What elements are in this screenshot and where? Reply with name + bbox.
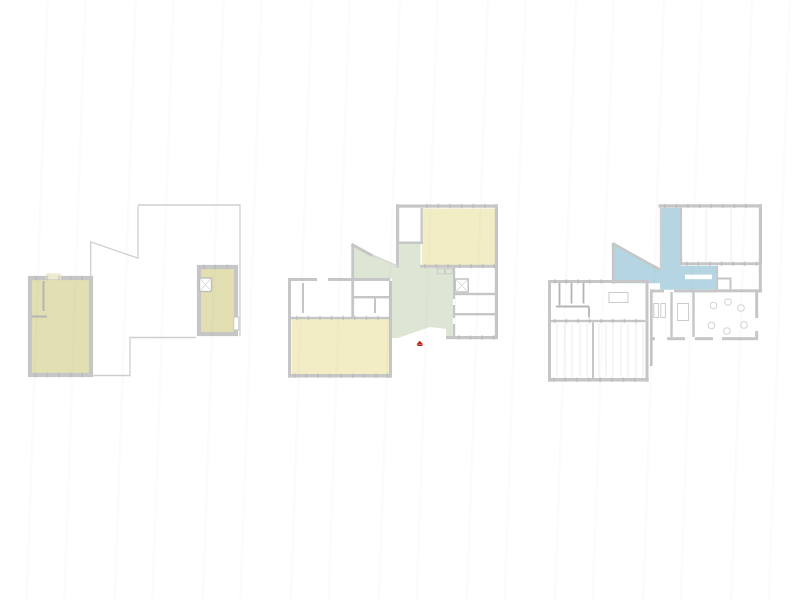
bath-fixtures (609, 293, 689, 321)
floor-plan-left (30, 205, 240, 376)
entrance-marker (416, 341, 423, 346)
floor-plan-center (288, 205, 498, 378)
floor-plan-right (548, 204, 762, 381)
room-southwest (30, 278, 91, 375)
rooms-southwest (292, 319, 391, 375)
stair-landing (685, 275, 712, 280)
alcove-wall (718, 279, 731, 290)
floor-plan-sheet (0, 0, 800, 600)
furniture-circles (708, 299, 747, 334)
ceiling-lines (706, 209, 731, 263)
floor-plans-canvas (0, 0, 800, 600)
shaft-symbol (455, 279, 468, 292)
floor-hatch (557, 324, 643, 378)
closet-walls (556, 283, 589, 318)
room-northeast (422, 209, 496, 266)
wall-notch (234, 317, 239, 330)
room-east (199, 267, 236, 334)
shaft-symbol (200, 278, 212, 292)
